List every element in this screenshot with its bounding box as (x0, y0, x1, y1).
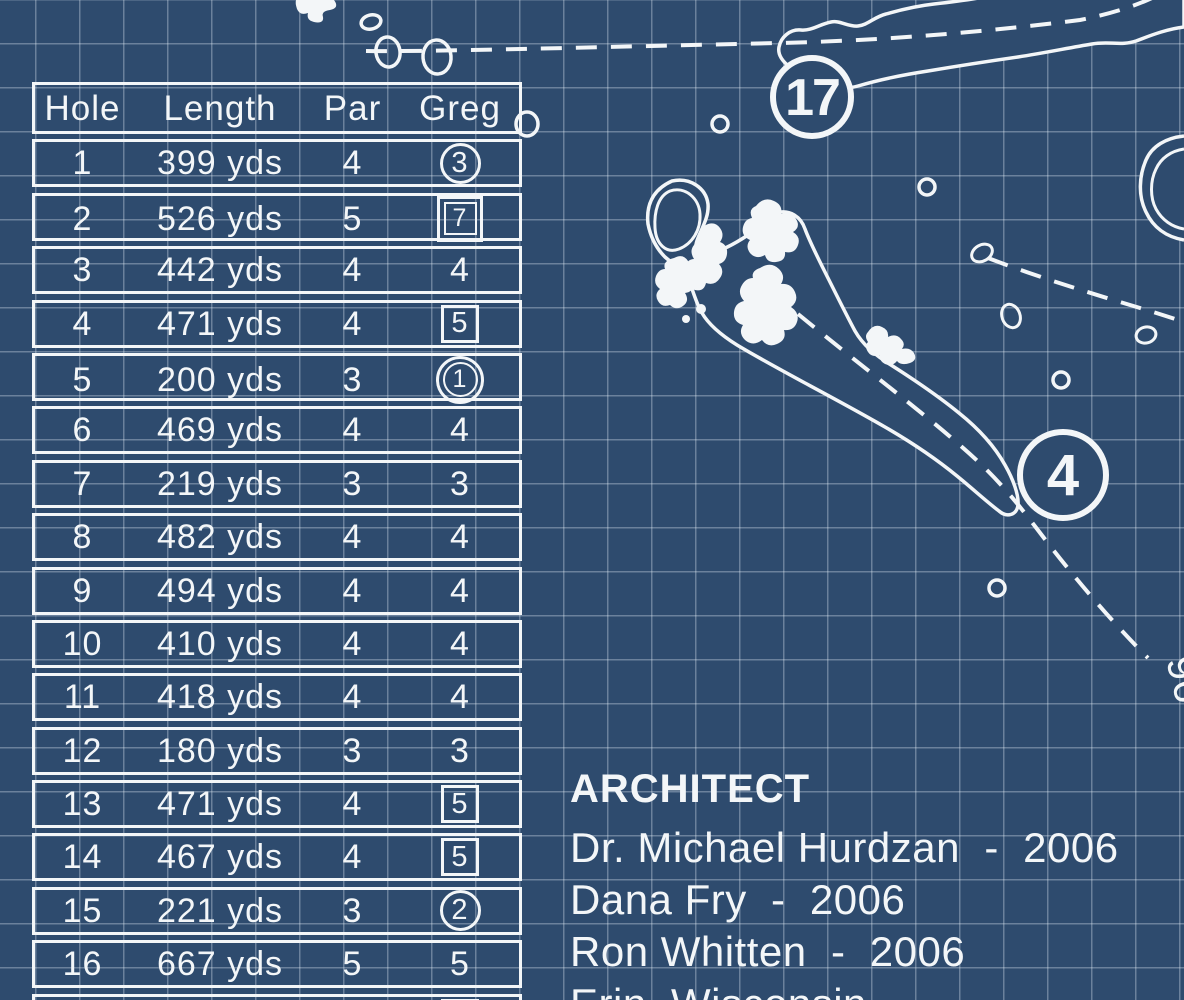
bunker (696, 304, 706, 314)
hole-cell: 6 (35, 413, 130, 447)
par-cell: 4 (310, 840, 395, 874)
par-cell: 4 (310, 520, 395, 554)
table-row: 15221 yds32 (32, 887, 522, 935)
score-circle: 2 (440, 890, 481, 931)
greg-cell: 4 (395, 627, 525, 661)
par-cell: 4 (310, 627, 395, 661)
par-cell: 3 (310, 894, 395, 928)
architect-line: Ron Whitten - 2006 (570, 926, 1119, 978)
greg-cell: 3 (395, 143, 525, 184)
table-row: 5200 yds31 (32, 353, 522, 401)
scorecard: Hole Length Par Greg 1399 yds432526 yds5… (32, 82, 522, 1000)
length-cell: 219 yds (130, 467, 310, 501)
score-double-square-inner: 7 (444, 202, 477, 235)
yardage-dot (989, 580, 1005, 596)
architect-heading: ARCHITECT (570, 766, 1119, 812)
greg-cell: 3 (395, 467, 525, 501)
greg-cell: 7 (395, 196, 525, 242)
architect-line: Erin, Wisconsin (570, 978, 1119, 1000)
table-row: 8482 yds44 (32, 513, 522, 561)
hole-cell: 2 (35, 202, 130, 236)
length-cell: 180 yds (130, 734, 310, 768)
hole-cell: 12 (35, 734, 130, 768)
tee-box (1134, 325, 1157, 346)
hole-cell: 1 (35, 146, 130, 180)
length-cell: 471 yds (130, 307, 310, 341)
par-cell: 4 (310, 413, 395, 447)
table-row: 1399 yds43 (32, 139, 522, 187)
hole-cell: 10 (35, 627, 130, 661)
greg-cell: 4 (395, 574, 525, 608)
par-cell: 5 (310, 947, 395, 981)
length-cell: 471 yds (130, 787, 310, 821)
hole-4-label: 4 (1047, 443, 1079, 508)
table-row: 13471 yds45 (32, 780, 522, 828)
hole-cell: 7 (35, 467, 130, 501)
par-cell: 3 (310, 363, 395, 397)
header-greg: Greg (395, 91, 525, 126)
scorecard-header: Hole Length Par Greg (32, 82, 522, 134)
greg-cell: 5 (395, 305, 525, 343)
greg-cell: 4 (395, 680, 525, 714)
length-cell: 418 yds (130, 680, 310, 714)
par-cell: 4 (310, 787, 395, 821)
greg-cell: 3 (395, 734, 525, 768)
greg-cell: 4 (395, 520, 525, 554)
par-cell: 4 (310, 680, 395, 714)
par-cell: 4 (310, 574, 395, 608)
hole-cell: 3 (35, 253, 130, 287)
hole-cell: 11 (35, 680, 130, 714)
table-row: 12180 yds33 (32, 727, 522, 775)
par-cell: 4 (310, 307, 395, 341)
length-cell: 467 yds (130, 840, 310, 874)
table-row: 14467 yds45 (32, 833, 522, 881)
architect-line: Dana Fry - 2006 (570, 874, 1119, 926)
hole-cell: 15 (35, 894, 130, 928)
yardage-dot (712, 116, 728, 132)
table-row: 6469 yds44 (32, 406, 522, 454)
blueprint-poster: 17 4 96 Hole Length Par Greg 1399 yds432… (0, 0, 1184, 1000)
header-hole: Hole (35, 91, 130, 126)
bunker (655, 256, 694, 308)
par-cell: 3 (310, 467, 395, 501)
header-par: Par (310, 91, 395, 126)
length-cell: 200 yds (130, 363, 310, 397)
hole-cell: 4 (35, 307, 130, 341)
tee-box (968, 241, 995, 266)
par-cell: 5 (310, 202, 395, 236)
length-cell: 410 yds (130, 627, 310, 661)
hole-cell: 16 (35, 947, 130, 981)
greg-cell: 4 (395, 413, 525, 447)
hole-cell: 5 (35, 363, 130, 397)
table-row: 11418 yds44 (32, 673, 522, 721)
length-cell: 399 yds (130, 146, 310, 180)
bunker (296, 0, 337, 22)
table-row: 16667 yds55 (32, 940, 522, 988)
table-row: 7219 yds33 (32, 460, 522, 508)
tee-box (422, 39, 453, 75)
score-circle: 3 (440, 143, 481, 184)
greg-cell: 5 (395, 838, 525, 876)
yardage-label: 96 (1157, 651, 1184, 708)
table-row: 2526 yds57 (32, 193, 522, 241)
greg-cell: 5 (395, 947, 525, 981)
length-cell: 494 yds (130, 574, 310, 608)
tee-box (998, 302, 1023, 331)
table-row: 10410 yds44 (32, 620, 522, 668)
score-double-circle: 1 (436, 356, 484, 404)
hole-cell: 9 (35, 574, 130, 608)
centerline-right (988, 258, 1184, 322)
greg-cell: 5 (395, 785, 525, 823)
hole-17-label: 17 (785, 69, 839, 127)
yardage-dot (1053, 372, 1069, 388)
length-cell: 469 yds (130, 413, 310, 447)
architect-block: ARCHITECT Dr. Michael Hurdzan - 2006 Dan… (570, 766, 1119, 1000)
scorecard-rows: 1399 yds432526 yds573442 yds444471 yds45… (32, 139, 522, 1000)
table-row (32, 994, 522, 1000)
hole-cell: 13 (35, 787, 130, 821)
hole-cell: 14 (35, 840, 130, 874)
length-cell: 667 yds (130, 947, 310, 981)
score-double-square: 7 (437, 196, 483, 242)
greg-cell: 4 (395, 253, 525, 287)
table-row: 3442 yds44 (32, 246, 522, 294)
bunker (682, 315, 690, 323)
greg-cell: 2 (395, 890, 525, 931)
par-cell: 3 (310, 734, 395, 768)
table-row: 9494 yds44 (32, 567, 522, 615)
yardage-dot (919, 179, 935, 195)
length-cell: 482 yds (130, 520, 310, 554)
hole-cell: 8 (35, 520, 130, 554)
score-double-circle-inner: 1 (443, 362, 478, 397)
score-square: 5 (441, 785, 479, 823)
greg-cell: 1 (395, 356, 525, 404)
length-cell: 526 yds (130, 202, 310, 236)
header-length: Length (130, 91, 310, 126)
architect-line: Dr. Michael Hurdzan - 2006 (570, 822, 1119, 874)
par-cell: 4 (310, 146, 395, 180)
score-square: 5 (441, 305, 479, 343)
table-row: 4471 yds45 (32, 300, 522, 348)
tee-box (360, 13, 383, 31)
length-cell: 442 yds (130, 253, 310, 287)
score-square: 5 (441, 838, 479, 876)
par-cell: 4 (310, 253, 395, 287)
length-cell: 221 yds (130, 894, 310, 928)
